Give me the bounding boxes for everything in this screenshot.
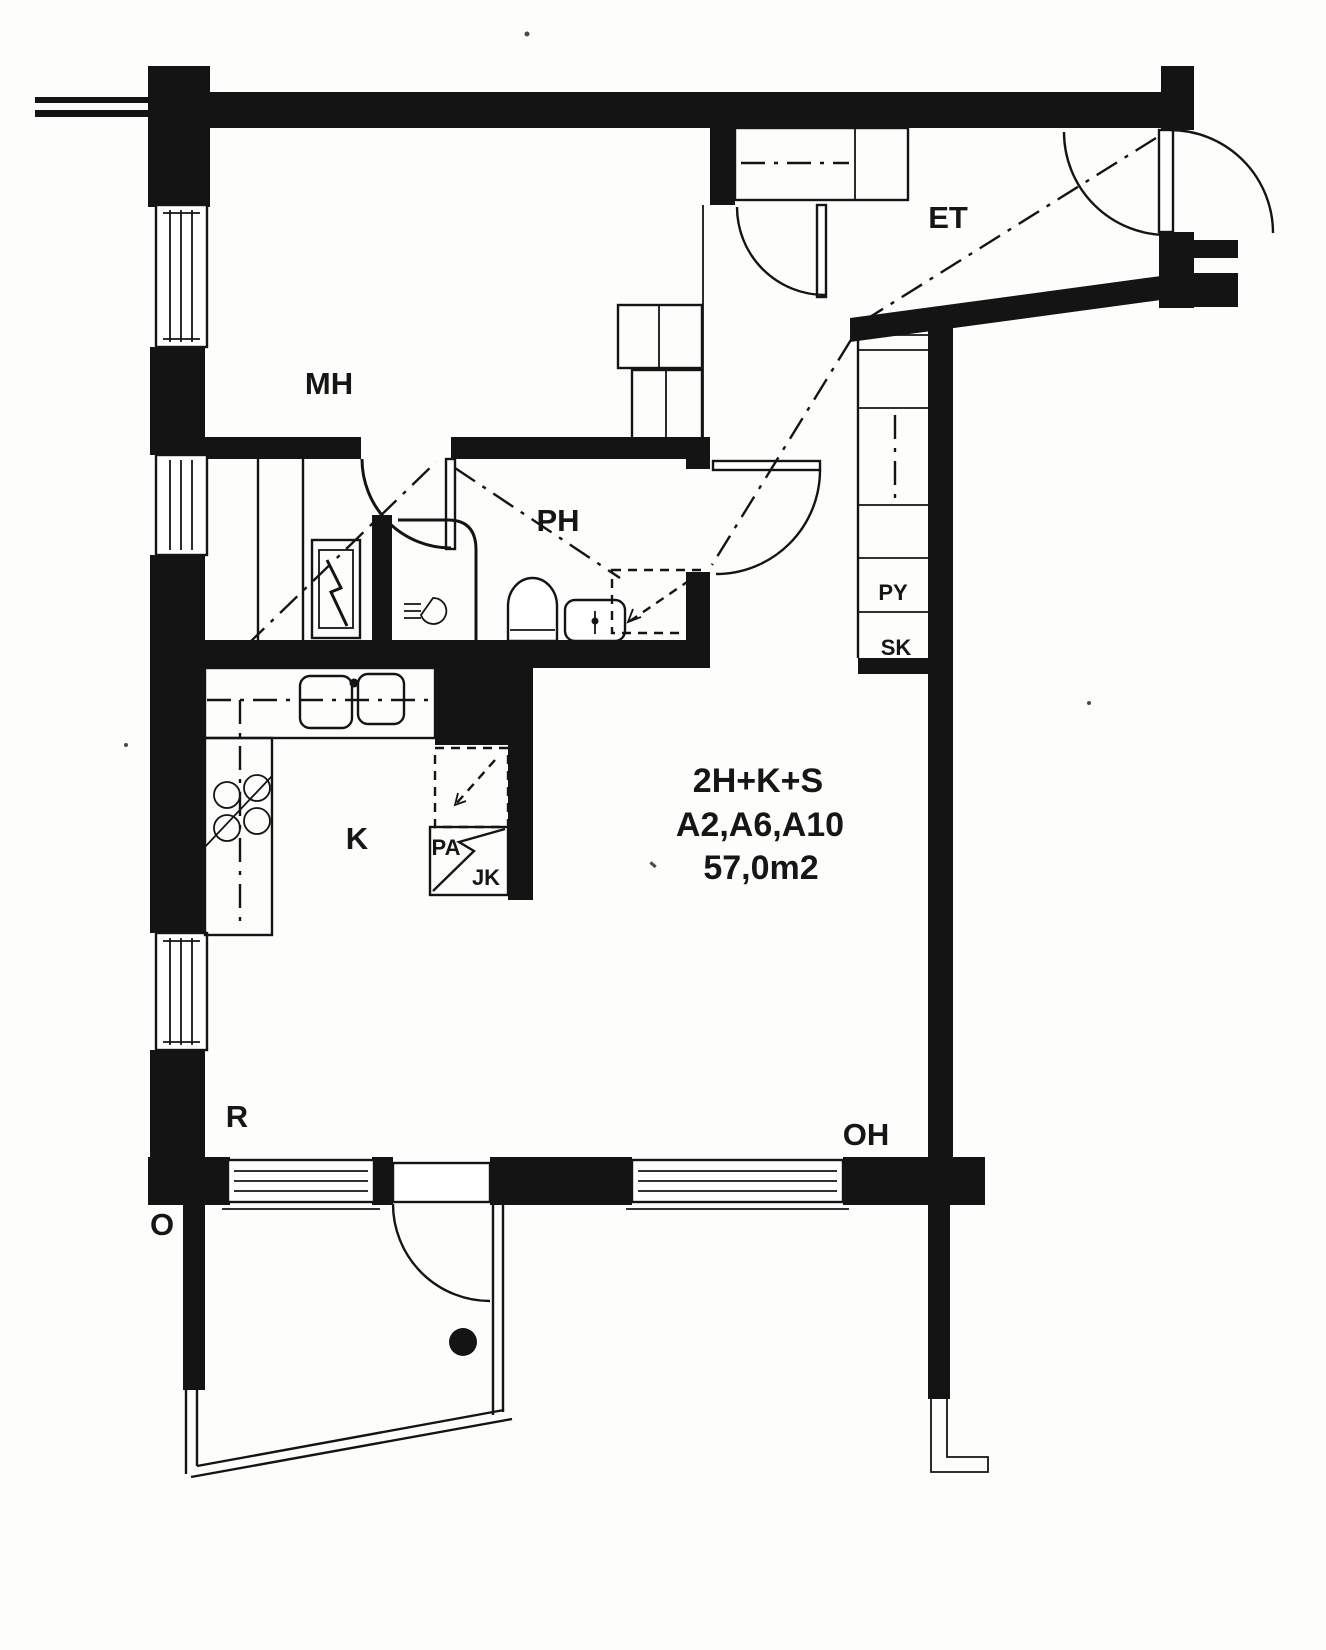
balcony-drain — [449, 1328, 477, 1356]
wall-closet-bottom — [858, 658, 928, 674]
label-oh: OH — [843, 1117, 890, 1152]
label-apartment-type: 2H+K+S — [693, 762, 823, 800]
wall-entry-stub-2 — [1194, 273, 1238, 307]
wall-right — [928, 318, 953, 1157]
entrance-door — [1064, 130, 1273, 235]
dishwasher-space — [435, 748, 508, 827]
wall-bottom-3 — [843, 1157, 985, 1205]
bathroom-fixtures — [258, 459, 702, 641]
wall-bottom-corner — [148, 1157, 230, 1205]
stove-icon — [203, 775, 272, 849]
wall-left-1 — [150, 92, 205, 207]
shower-icon — [404, 598, 446, 624]
window-sauna — [156, 455, 207, 555]
floor-plan-page: MH PH ET K OH R O PY SK PA JK 2H+K+S A2,… — [0, 0, 1326, 1650]
right-wall-footing — [931, 1399, 988, 1472]
wall-left-4 — [150, 1050, 205, 1157]
wall-ph-east-bottom — [686, 572, 710, 640]
window-r — [222, 1160, 380, 1209]
label-r: R — [226, 1099, 248, 1134]
wall-ph-east-top — [686, 459, 710, 469]
entrance-door-inner-arc — [1064, 132, 1167, 235]
wall-entry-pillar-top — [1161, 66, 1194, 130]
balcony — [186, 1205, 988, 1477]
toilet-icon — [508, 578, 557, 641]
label-k: K — [346, 821, 369, 856]
label-mh: MH — [305, 366, 353, 401]
wall-balcony-left — [183, 1205, 205, 1390]
py-sk-closet-column — [858, 335, 928, 658]
wall-entry-stub-1 — [1194, 240, 1238, 258]
window-mh — [156, 205, 207, 347]
label-py: PY — [878, 580, 908, 605]
balcony-door — [393, 1163, 490, 1301]
wall-plumbing-block — [435, 668, 508, 745]
labels: MH PH ET K OH R O PY SK PA JK 2H+K+S A2,… — [150, 200, 968, 1242]
window-oh — [626, 1160, 849, 1209]
label-ph: PH — [536, 503, 579, 538]
label-apartment-area: 57,0m2 — [703, 849, 818, 887]
entrance-door-outer-arc — [1170, 130, 1273, 233]
mh-door — [737, 205, 826, 297]
label-sk: SK — [881, 635, 912, 660]
label-pa: PA — [432, 835, 461, 860]
closets — [618, 128, 928, 658]
wall-hall-diagonal — [850, 276, 1161, 342]
wall-wetblock-south — [200, 640, 710, 668]
hall-closet — [735, 128, 908, 200]
wall-mh-south-1 — [200, 437, 361, 459]
balcony-rail-bottom-inner — [197, 1410, 504, 1466]
window-kitchen — [156, 933, 207, 1050]
washbasin-icon — [565, 600, 625, 641]
label-jk: JK — [472, 865, 500, 890]
sauna-heater — [312, 540, 360, 638]
wall-top — [200, 92, 1167, 128]
mh-wardrobes — [618, 305, 702, 440]
label-outside-o: O — [150, 1207, 174, 1242]
wall-kitchen-divider — [508, 640, 533, 900]
wall-stub-line-1 — [35, 97, 148, 103]
wall-stub-line-2 — [35, 110, 148, 117]
wall-right-below — [928, 1205, 950, 1399]
wall-entry-pillar-bottom — [1159, 232, 1194, 308]
floor-plan-drawing: MH PH ET K OH R O PY SK PA JK 2H+K+S A2,… — [0, 0, 1326, 1650]
wall-sauna-divider — [372, 515, 392, 640]
wall-bottom-2 — [490, 1157, 632, 1205]
label-et: ET — [928, 200, 968, 235]
wall-mh-east — [710, 126, 735, 205]
label-apartment-units: A2,A6,A10 — [676, 806, 844, 844]
wall-left-2 — [150, 347, 205, 455]
wall-left-3 — [150, 555, 205, 933]
balcony-rail-bottom-outer — [191, 1419, 512, 1477]
